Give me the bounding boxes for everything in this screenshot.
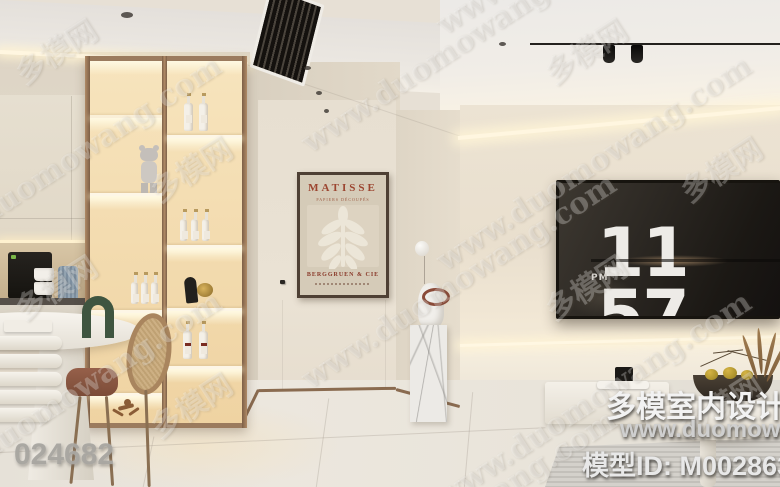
leaf-cutout-art [313,205,373,269]
dining-chair-cushion [66,368,118,396]
wine-bottle [141,282,148,304]
flip-clock-split-line [591,259,780,262]
cabinet-column-right [167,61,242,423]
wine-bottle [202,219,209,241]
clock-meridiem: PM [591,273,609,283]
flip-clock: 1157 PM [597,223,777,293]
gold-disc-ornament [197,283,213,297]
matisse-poster: MATISSE PAPIERS DÉCOUPÉS BERGGRUEN & CIE [297,172,389,298]
cabinet-seam [0,218,85,219]
wine-bottle [199,103,208,131]
clock-minute: 57 [597,285,688,316]
watermark-site-url: www.duomowang.com [620,416,780,444]
bear-figurine [136,148,162,194]
wine-bottle [183,331,192,359]
track-spotlight-icon [603,45,615,63]
interior-render-screenshot: MATISSE PAPIERS DÉCOUPÉS BERGGRUEN & CIE [0,0,780,487]
door-seam [282,300,283,390]
kitchen-countertop [0,298,85,305]
kitchen-upper-cabinets [0,95,85,243]
balloon-sculpture [415,241,429,256]
recessed-light-icon [304,66,311,70]
tv-screen: 1157 PM [559,183,780,316]
cabinet-frame [242,56,247,428]
cabinet-seam [71,96,72,242]
wine-bottle [151,282,158,304]
poster-title: MATISSE [300,182,386,194]
watermark-model-id: 模型ID: M0028638 [582,444,780,483]
balloon-string [424,256,425,284]
cup [34,268,54,281]
television: 1157 PM [556,180,780,319]
poster-subtitle: PAPIERS DÉCOUPÉS [300,197,386,202]
runner-figurine [112,397,142,423]
black-figurine [184,276,199,303]
wine-bottle [191,219,198,241]
track-spotlight-icon [631,45,643,63]
door-handle [280,280,285,284]
canister [58,266,78,299]
figurine-ring [422,288,450,306]
wine-bottle [131,282,138,304]
poster-footer: BERGGRUEN & CIE [300,272,386,278]
marble-pedestal [410,325,447,422]
wine-bottle [199,331,208,359]
cup [34,282,54,295]
recessed-light-icon [324,109,329,113]
poster-footer-line [315,283,370,285]
camera-object [615,367,633,382]
ceiling-track [530,43,780,45]
recessed-light-icon [499,42,506,46]
door-seam [385,300,386,388]
book-on-table [4,320,52,332]
recessed-light-icon [121,12,133,18]
wine-bottle [180,219,187,241]
recessed-light-icon [316,91,322,95]
dried-plant [744,328,780,388]
watermark-image-id: 024682 [14,438,114,472]
wine-bottle [184,103,193,131]
arch-sculpture [82,296,114,338]
